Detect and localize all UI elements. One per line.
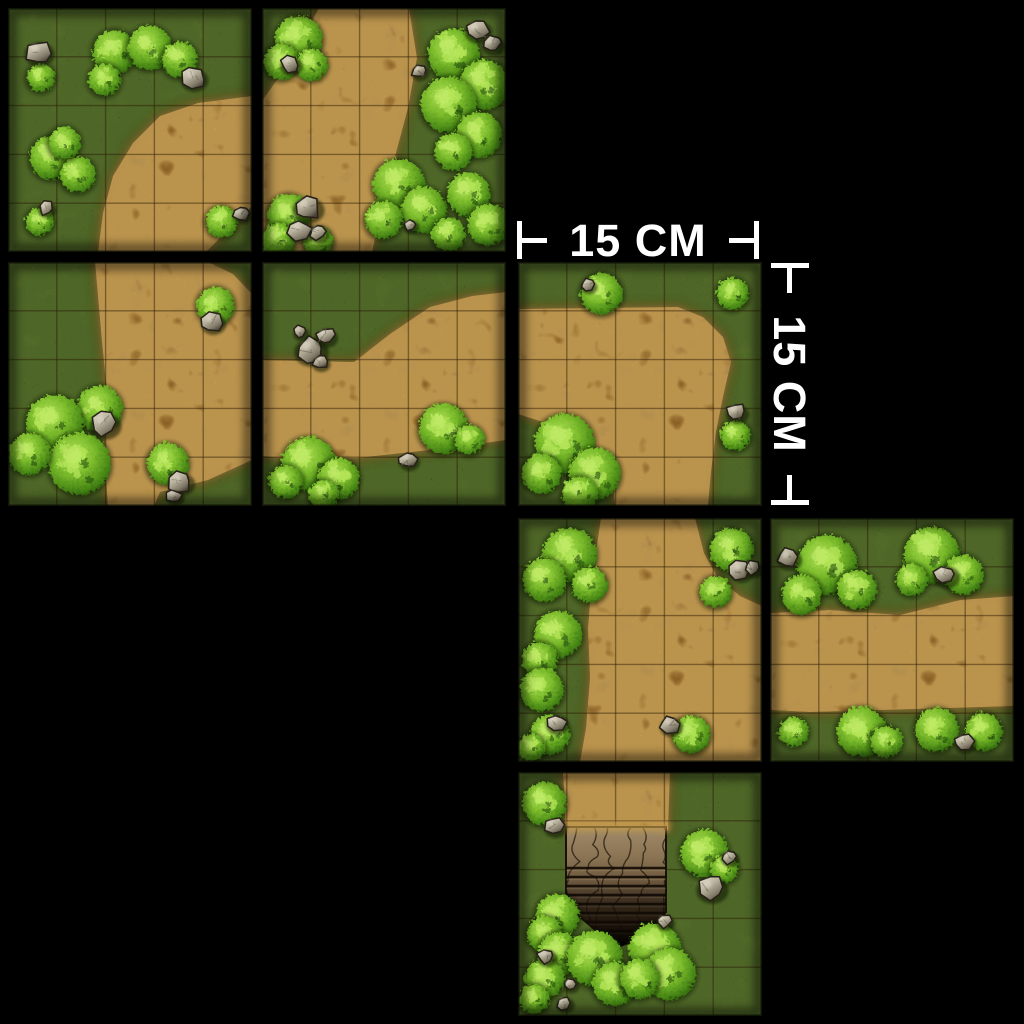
ruler-endcap-right-icon xyxy=(729,221,759,259)
map-tile-d xyxy=(262,262,506,506)
map-tile-b xyxy=(262,8,506,252)
map-tile-e xyxy=(518,262,762,506)
map-tile-c xyxy=(8,262,252,506)
map-tile-h xyxy=(518,772,762,1016)
tile-artwork xyxy=(518,518,762,762)
tile-artwork xyxy=(262,8,506,252)
tile-artwork xyxy=(8,8,252,252)
tile-artwork xyxy=(262,262,506,506)
tile-artwork xyxy=(770,518,1014,762)
map-tile-f xyxy=(518,518,762,762)
scale-label-vertical: 15 CM xyxy=(766,263,814,505)
map-tile-a xyxy=(8,8,252,252)
scale-label-horizontal: 15 CM xyxy=(517,220,759,260)
tile-artwork xyxy=(8,262,252,506)
scale-text-horizontal: 15 CM xyxy=(569,218,707,263)
map-tile-g xyxy=(770,518,1014,762)
scale-text-vertical: 15 CM xyxy=(768,315,813,453)
ruler-endcap-bottom-icon xyxy=(771,475,809,505)
tile-artwork xyxy=(518,262,762,506)
ruler-endcap-top-icon xyxy=(771,263,809,293)
ruler-endcap-left-icon xyxy=(517,221,547,259)
tile-artwork xyxy=(518,772,762,1016)
tile-sheet: 15 CM 15 CM xyxy=(0,0,1024,1024)
